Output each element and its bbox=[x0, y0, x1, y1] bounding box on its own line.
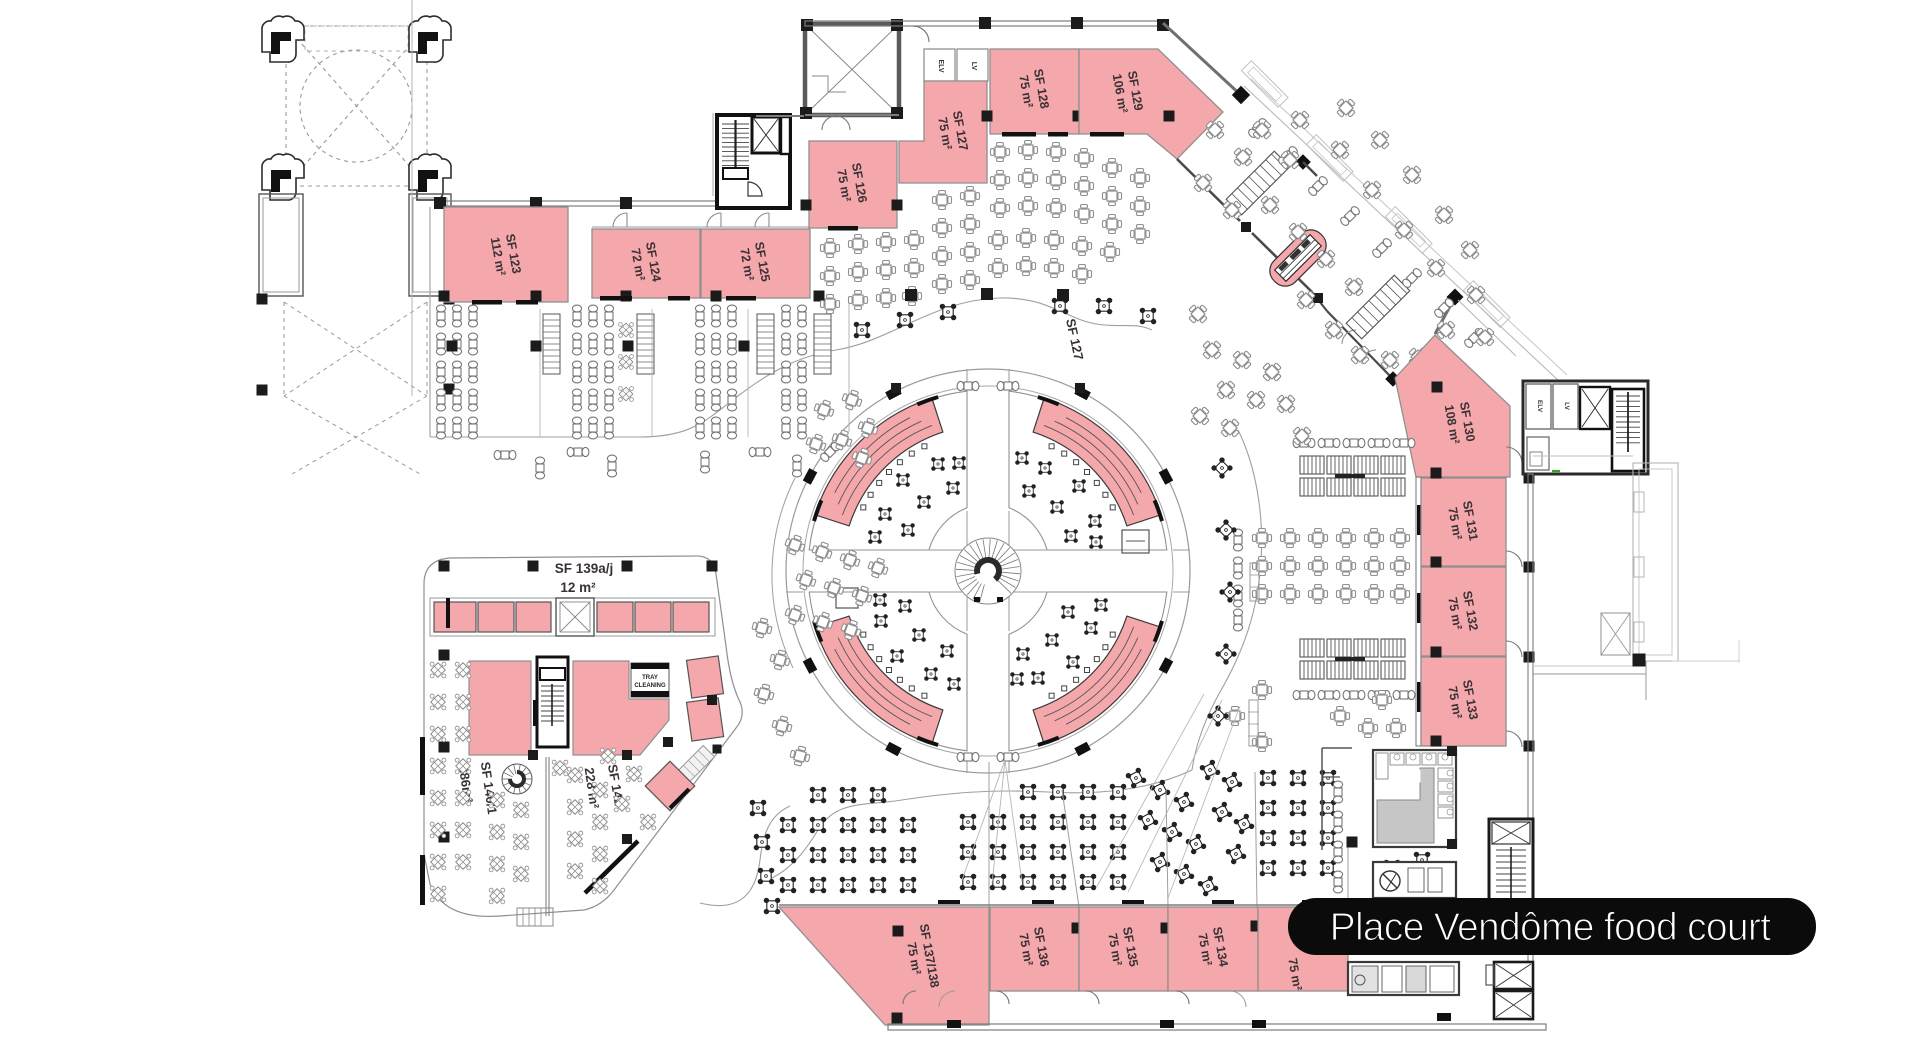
svg-text:Place Vendôme food court: Place Vendôme food court bbox=[1330, 906, 1772, 949]
svg-text:LV: LV bbox=[970, 62, 977, 71]
svg-text:ELV: ELV bbox=[937, 59, 944, 72]
svg-text:SF 127: SF 127 bbox=[1063, 317, 1086, 361]
svg-text:12 m²: 12 m² bbox=[560, 580, 596, 595]
svg-text:LV: LV bbox=[1563, 402, 1570, 410]
svg-text:TRAY: TRAY bbox=[642, 675, 658, 681]
svg-text:SF 139a/j: SF 139a/j bbox=[555, 561, 614, 576]
svg-text:ELV: ELV bbox=[1536, 400, 1543, 413]
svg-text:CLEANING: CLEANING bbox=[634, 683, 666, 689]
